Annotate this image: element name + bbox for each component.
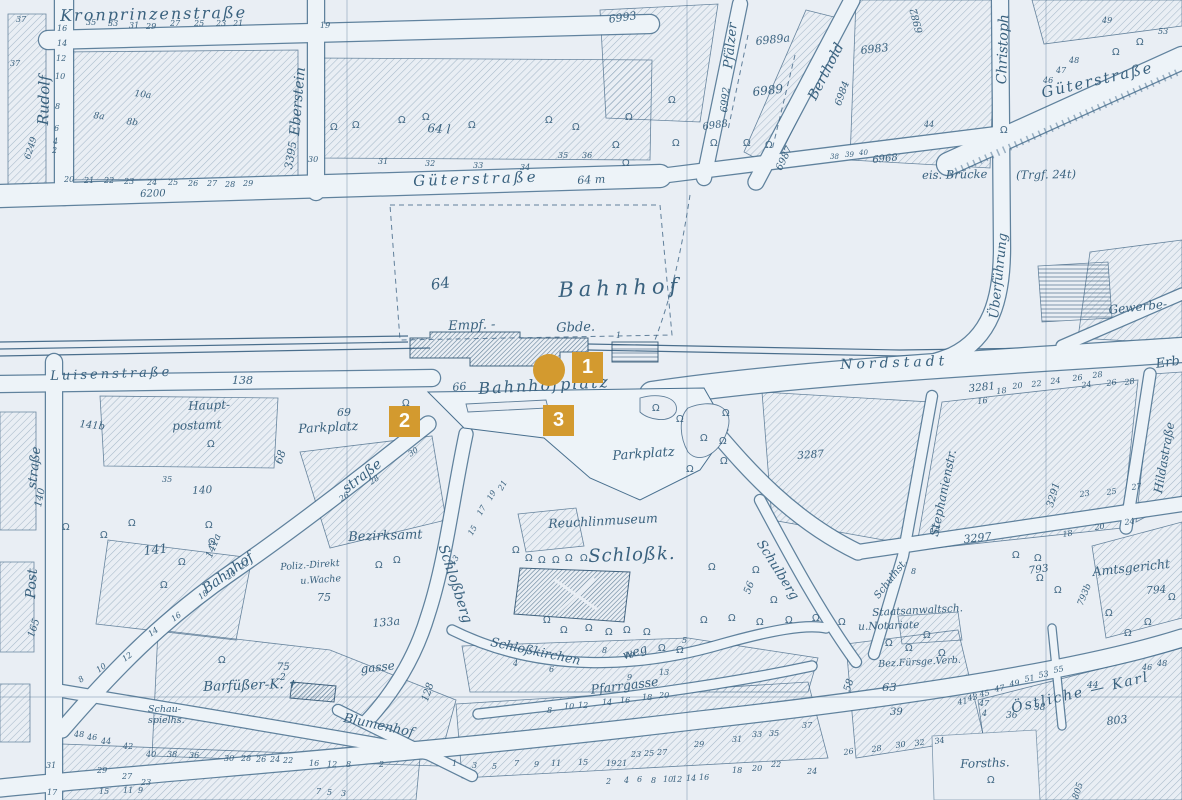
- map-label: 20: [752, 765, 762, 773]
- map-base-layer: [0, 0, 1182, 800]
- tree-icon: Ω: [652, 403, 660, 414]
- tree-icon: Ω: [623, 625, 631, 636]
- map-label: gasse: [360, 659, 395, 675]
- tree-icon: Ω: [585, 623, 593, 634]
- map-label: (Trgf. 24t): [1016, 169, 1076, 182]
- map-label: Rudolf: [36, 75, 53, 125]
- tree-icon: Ω: [1105, 608, 1113, 619]
- map-label: 28: [1092, 371, 1103, 380]
- map-label: 27: [1131, 483, 1142, 492]
- map-label: 3297: [963, 531, 992, 545]
- historical-city-map: ΩΩΩΩΩΩΩΩΩΩΩΩΩΩΩΩΩΩΩΩΩΩΩΩΩΩΩΩΩΩΩΩΩΩΩΩΩΩΩΩ…: [0, 0, 1182, 800]
- map-label: 4: [513, 660, 518, 668]
- map-label: 33: [752, 731, 762, 739]
- map-label: 20: [1012, 382, 1023, 391]
- tree-icon: Ω: [708, 562, 716, 573]
- map-label: Post: [24, 568, 40, 599]
- map-label: Empf. -: [448, 318, 496, 333]
- map-label: 8a: [93, 112, 105, 122]
- map-label: 31: [378, 158, 388, 166]
- map-label: 53: [1158, 28, 1168, 36]
- map-label: 8: [911, 568, 916, 576]
- map-label: 3287: [797, 449, 824, 461]
- map-label: 25: [644, 750, 654, 758]
- tree-icon: Ω: [1054, 585, 1062, 596]
- marker-label: 2: [399, 410, 410, 433]
- tree-icon: Ω: [612, 140, 620, 151]
- schlosskirche-building: [514, 568, 630, 622]
- tree-icon: Ω: [352, 120, 360, 131]
- map-label: 46: [1142, 664, 1152, 672]
- tree-icon: Ω: [720, 456, 728, 467]
- map-label: Bahnhof: [558, 276, 683, 301]
- map-label: 27: [207, 180, 217, 188]
- map-label: 29: [694, 741, 704, 749]
- map-label: 25: [194, 20, 204, 28]
- tree-icon: Ω: [330, 122, 338, 133]
- map-label: 29: [97, 767, 107, 775]
- map-label: 3281: [968, 381, 996, 394]
- marker-label: 3: [553, 409, 564, 432]
- map-label: 2: [606, 778, 611, 786]
- map-label: 18: [732, 767, 742, 775]
- map-label: 3: [341, 790, 346, 798]
- map-label: 24: [147, 179, 157, 187]
- tree-icon: Ω: [1168, 592, 1176, 603]
- map-label: 16: [309, 760, 319, 768]
- map-label: 12: [672, 776, 682, 784]
- bahnhofplatz-plaza: [428, 388, 729, 500]
- map-label: 4: [982, 710, 987, 718]
- map-label: ✝: [287, 679, 296, 690]
- tree-icon: Ω: [565, 553, 573, 564]
- map-label: 26: [843, 748, 854, 757]
- map-label: 25: [168, 179, 178, 187]
- tree-icon: Ω: [905, 643, 913, 654]
- map-label: 141: [143, 543, 168, 558]
- map-label: 11: [123, 787, 133, 795]
- tree-icon: Ω: [756, 617, 764, 628]
- map-label: 69: [337, 407, 351, 418]
- map-label: 75: [317, 592, 331, 603]
- tree-icon: Ω: [160, 580, 168, 591]
- map-label: Christoph: [995, 14, 1011, 85]
- map-label: 5: [327, 789, 332, 797]
- map-label: 20: [1094, 523, 1105, 532]
- map-label: eis. Brücke: [922, 169, 987, 182]
- map-label: 39: [845, 152, 854, 159]
- tree-icon: Ω: [398, 115, 406, 126]
- map-label: 33: [108, 20, 118, 28]
- map-label: Gbde.: [556, 321, 595, 335]
- map-label: 24: [1050, 377, 1061, 386]
- map-label: 23: [1079, 490, 1090, 499]
- map-label: 44: [101, 738, 111, 746]
- map-label: 16: [57, 25, 67, 33]
- map-label: 2: [52, 147, 57, 155]
- tree-icon: Ω: [1012, 550, 1020, 561]
- map-label: 11: [551, 760, 561, 768]
- map-label: 37: [16, 16, 26, 24]
- map-label: 30: [308, 156, 318, 164]
- map-label: 8: [55, 103, 60, 111]
- tree-icon: Ω: [885, 638, 893, 649]
- tree-icon: Ω: [178, 557, 186, 568]
- tree-icon: Ω: [838, 617, 846, 628]
- map-label: 16: [977, 397, 988, 406]
- map-label: 6: [54, 125, 59, 133]
- map-label: 14: [57, 40, 67, 48]
- map-label: 5: [682, 637, 687, 645]
- map-label: 46: [1043, 77, 1053, 85]
- map-label: spielhs.: [148, 716, 185, 726]
- map-label: 31: [46, 762, 56, 770]
- map-label: 25: [1106, 488, 1117, 497]
- tree-icon: Ω: [722, 408, 730, 419]
- map-label: 793: [1028, 563, 1049, 576]
- tree-icon: Ω: [468, 120, 476, 131]
- map-label: 9: [138, 787, 143, 795]
- tree-icon: Ω: [676, 414, 684, 425]
- map-label: 27: [170, 20, 180, 28]
- tree-icon: Ω: [987, 775, 995, 786]
- map-label: 4: [624, 777, 629, 785]
- tree-icon: Ω: [545, 115, 553, 126]
- tree-icon: Ω: [719, 436, 727, 447]
- map-label: 64 l: [427, 122, 451, 136]
- map-label: 48: [1157, 660, 1167, 668]
- map-label: u.Notariate: [858, 620, 920, 633]
- map-label: Güterstraße: [413, 170, 539, 189]
- map-label: 29: [146, 23, 156, 31]
- map-label: 28: [225, 181, 235, 189]
- map-label: 37: [802, 722, 812, 730]
- map-label: 7: [514, 760, 519, 768]
- map-label: 6: [549, 666, 554, 674]
- map-label: 4: [53, 138, 58, 146]
- map-label: 19: [320, 22, 330, 30]
- map-label: Nordstadt: [840, 354, 949, 372]
- map-label: Barfüßer-K.: [203, 678, 284, 694]
- map-label: 5: [492, 763, 497, 771]
- map-label: 8: [602, 647, 607, 655]
- map-label: 31: [732, 736, 742, 744]
- map-label: 10: [564, 703, 574, 711]
- tree-icon: Ω: [572, 122, 580, 133]
- tree-icon: Ω: [1136, 37, 1144, 48]
- tree-icon: Ω: [686, 464, 694, 475]
- tree-icon: Ω: [1144, 617, 1152, 628]
- map-label: 15: [99, 788, 109, 796]
- map-label: 26: [256, 756, 266, 764]
- marker-1[interactable]: 1: [572, 352, 603, 383]
- map-label: 32: [914, 739, 925, 748]
- tree-icon: Ω: [672, 138, 680, 149]
- map-label: 26: [1106, 379, 1117, 388]
- map-label: 39: [890, 708, 903, 718]
- map-label: 48: [74, 731, 84, 739]
- marker-dot[interactable]: [533, 354, 565, 386]
- map-label: 49: [1102, 17, 1112, 25]
- map-label: 24: [807, 768, 817, 776]
- map-label: 35: [86, 19, 96, 27]
- map-label: 64: [430, 275, 451, 293]
- map-label: 20: [64, 176, 74, 184]
- tree-icon: Ω: [543, 615, 551, 626]
- map-label: 22: [1031, 380, 1042, 389]
- tree-icon: Ω: [393, 555, 401, 566]
- tree-icon: Ω: [1124, 628, 1132, 639]
- tree-icon: Ω: [512, 545, 520, 556]
- tree-icon: Ω: [658, 643, 666, 654]
- map-label: 30: [224, 755, 234, 763]
- map-label: 28: [1124, 378, 1135, 387]
- map-label: 8b: [126, 118, 139, 129]
- map-label: 30: [895, 741, 906, 750]
- tree-icon: Ω: [205, 520, 213, 531]
- marker-3[interactable]: 3: [543, 405, 574, 436]
- tree-icon: Ω: [676, 645, 684, 656]
- map-label: 9: [627, 674, 632, 682]
- map-label: 18: [642, 694, 652, 702]
- map-label: 40: [146, 751, 156, 759]
- map-label: 2: [379, 761, 384, 769]
- map-label: 23: [216, 20, 226, 28]
- tree-icon: Ω: [525, 553, 533, 564]
- map-label: 794: [1146, 585, 1167, 597]
- map-label: 14: [686, 775, 696, 783]
- map-label: 10: [55, 73, 65, 81]
- map-label: 9: [534, 761, 539, 769]
- map-label: 35: [769, 730, 779, 738]
- tree-icon: Ω: [752, 565, 760, 576]
- map-label: 23: [124, 178, 134, 186]
- map-label: 14: [602, 699, 612, 707]
- map-label: Erb: [1155, 355, 1181, 371]
- map-label: 12: [578, 702, 588, 710]
- map-label: 75: [277, 663, 290, 673]
- map-label: 8: [651, 777, 656, 785]
- map-label: 22: [771, 761, 781, 769]
- map-label: 27: [657, 749, 667, 757]
- tree-icon: Ω: [743, 138, 751, 149]
- map-label: 22: [104, 177, 114, 185]
- map-label: 36: [582, 152, 592, 160]
- map-label: 34: [520, 164, 530, 172]
- tree-icon: Ω: [605, 627, 613, 638]
- map-label: 140: [192, 485, 213, 497]
- map-label: 36: [189, 752, 199, 760]
- map-label: 44: [924, 121, 934, 129]
- map-label: Forsths.: [960, 756, 1010, 770]
- tree-icon: Ω: [923, 630, 931, 641]
- tree-icon: Ω: [1112, 47, 1120, 58]
- map-label: 18: [996, 387, 1007, 396]
- map-label: 24: [270, 756, 280, 764]
- tree-icon: Ω: [128, 518, 136, 529]
- map-label: 803: [1106, 714, 1128, 727]
- map-label: 47: [1056, 67, 1066, 75]
- map-label: Schloßk.: [588, 545, 676, 566]
- map-label: 48: [1069, 57, 1079, 65]
- map-label: 34: [934, 737, 945, 746]
- map-label: 40: [859, 150, 868, 157]
- map-label: 13: [659, 669, 669, 677]
- tree-icon: Ω: [700, 433, 708, 444]
- map-label: Bezirksamt: [348, 528, 423, 544]
- tree-icon: Ω: [765, 140, 773, 151]
- tree-icon: Ω: [770, 595, 778, 606]
- tree-icon: Ω: [552, 555, 560, 566]
- map-label: 32: [425, 160, 435, 168]
- tree-icon: Ω: [62, 522, 70, 533]
- map-label: 27: [122, 773, 132, 781]
- tree-icon: Ω: [785, 615, 793, 626]
- map-label: 66: [452, 381, 467, 393]
- map-label: 21: [233, 20, 243, 28]
- tree-icon: Ω: [700, 615, 708, 626]
- map-label: 6983: [860, 42, 889, 56]
- map-label: 29: [243, 180, 253, 188]
- map-label: 35: [162, 476, 172, 484]
- tree-icon: Ω: [643, 627, 651, 638]
- tree-icon: Ω: [625, 112, 633, 123]
- map-label: Haupt-: [188, 399, 230, 412]
- map-label: 1: [616, 332, 621, 340]
- tree-icon: Ω: [538, 555, 546, 566]
- map-label: 20: [659, 692, 669, 700]
- tree-icon: Ω: [710, 138, 718, 149]
- map-label: 38: [167, 751, 177, 759]
- map-label: 19: [606, 760, 616, 768]
- map-label: 10: [624, 652, 634, 660]
- map-label: 15: [578, 759, 588, 767]
- map-label: 15: [930, 526, 940, 534]
- map-label: 23: [631, 751, 641, 759]
- map-label: 6989: [752, 83, 784, 98]
- map-label: 8: [547, 707, 552, 715]
- map-label: 22: [283, 757, 293, 765]
- map-label: Schau-: [148, 705, 181, 715]
- tree-icon: Ω: [580, 553, 588, 564]
- map-label: 8: [346, 761, 351, 769]
- map-label: 46: [87, 734, 97, 742]
- map-label: 18: [1062, 530, 1073, 539]
- tree-icon: Ω: [560, 625, 568, 636]
- map-label: 6989a: [755, 32, 791, 47]
- tree-icon: Ω: [668, 95, 676, 106]
- map-label: 12: [56, 55, 66, 63]
- tree-icon: Ω: [375, 560, 383, 571]
- map-label: 64 m: [577, 174, 605, 186]
- map-label: 31: [129, 22, 139, 30]
- map-label: 28: [241, 755, 251, 763]
- map-label: postamt: [172, 418, 222, 432]
- map-label: 16: [620, 697, 630, 705]
- map-label: 133a: [372, 616, 400, 629]
- map-label: 63: [882, 682, 897, 694]
- tree-icon: Ω: [812, 613, 820, 624]
- map-label: 17: [47, 789, 57, 797]
- tree-icon: Ω: [100, 530, 108, 541]
- map-label: 3: [472, 762, 477, 770]
- tree-icon: Ω: [728, 613, 736, 624]
- map-label: 2: [280, 674, 286, 683]
- map-label: 38: [1034, 704, 1045, 713]
- map-label: 26: [188, 180, 198, 188]
- tree-icon: Ω: [207, 439, 215, 450]
- map-label: 12: [327, 761, 337, 769]
- map-label: 42: [123, 743, 133, 751]
- map-label: 138: [232, 375, 253, 386]
- map-label: 33: [473, 162, 483, 170]
- tree-icon: Ω: [1000, 125, 1008, 136]
- barfuesser-church-building: [290, 682, 336, 702]
- map-label: 44: [1087, 682, 1098, 691]
- marker-label: 1: [582, 356, 593, 379]
- map-label: 37: [10, 60, 20, 68]
- map-label: Parkplatz: [298, 420, 358, 436]
- map-label: 36: [1006, 712, 1017, 721]
- map-label: 35: [558, 152, 568, 160]
- map-label: 16: [699, 774, 709, 782]
- marker-2[interactable]: 2: [389, 406, 420, 437]
- map-label: 7: [316, 788, 321, 796]
- tree-icon: Ω: [218, 655, 226, 666]
- map-label: 38: [830, 154, 839, 161]
- map-label: 6200: [140, 189, 166, 200]
- map-label: 24: [1124, 518, 1135, 527]
- map-label: 21: [84, 177, 94, 185]
- map-label: 1: [452, 760, 457, 768]
- map-label: 24: [1081, 381, 1092, 390]
- map-label: 47: [979, 700, 989, 708]
- map-label: 21: [617, 760, 627, 768]
- map-label: 28: [871, 745, 882, 754]
- tree-icon: Ω: [622, 158, 630, 169]
- map-label: 6: [637, 776, 642, 784]
